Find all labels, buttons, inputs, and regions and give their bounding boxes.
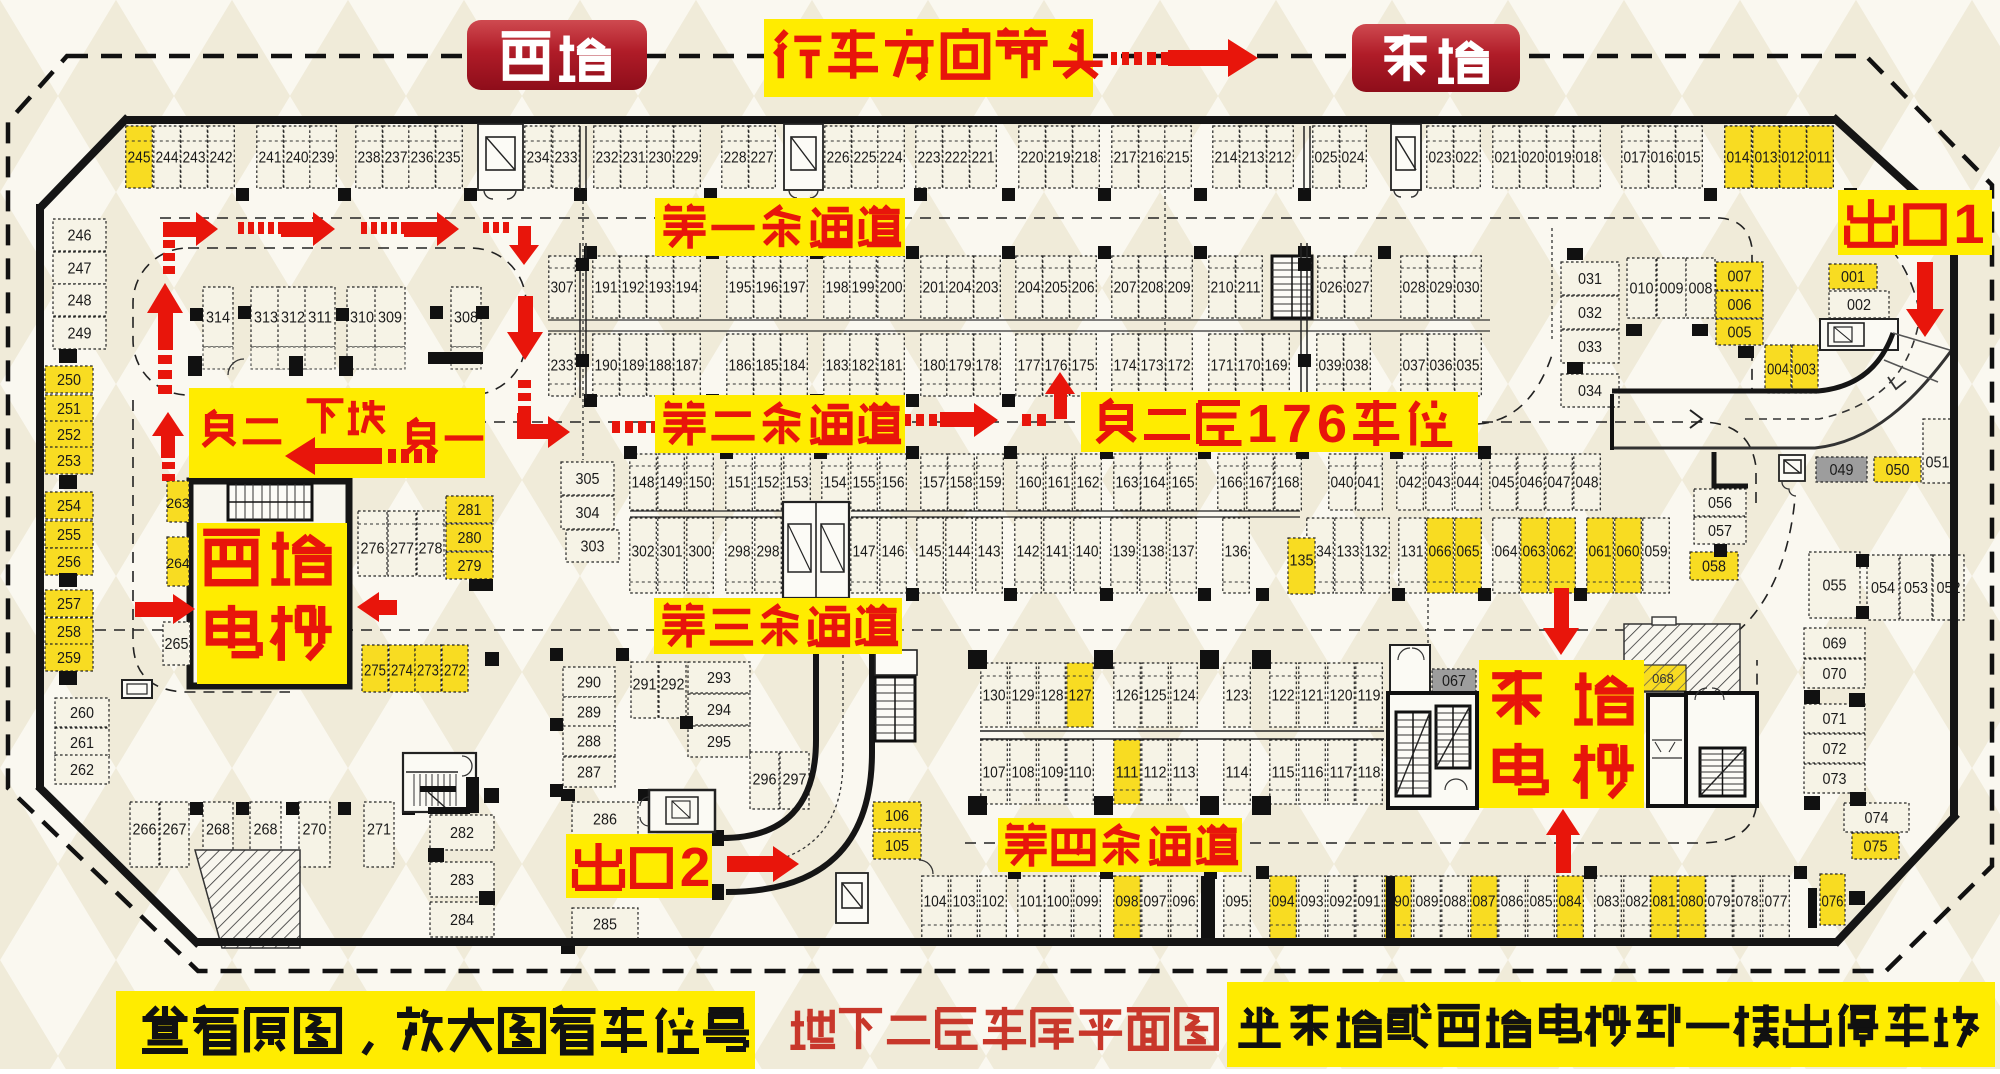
svg-text:218: 218 [1075, 150, 1098, 167]
svg-text:289: 289 [577, 705, 601, 722]
svg-text:200: 200 [880, 280, 903, 297]
svg-text:252: 252 [57, 427, 81, 444]
svg-text:280: 280 [458, 530, 482, 547]
svg-text:213: 213 [1242, 150, 1265, 167]
svg-text:103: 103 [953, 894, 976, 911]
svg-text:199: 199 [852, 280, 875, 297]
svg-text:029: 029 [1430, 280, 1453, 297]
svg-text:026: 026 [1320, 280, 1343, 297]
svg-text:151: 151 [728, 475, 751, 492]
svg-text:097: 097 [1144, 894, 1167, 911]
svg-text:243: 243 [183, 150, 206, 167]
svg-text:271: 271 [367, 822, 391, 839]
svg-text:230: 230 [649, 150, 672, 167]
svg-text:011: 011 [1809, 150, 1832, 167]
svg-text:186: 186 [729, 358, 752, 375]
svg-text:112: 112 [1144, 765, 1167, 782]
svg-text:291: 291 [633, 677, 657, 694]
svg-text:143: 143 [978, 544, 1001, 561]
svg-text:131: 131 [1401, 544, 1424, 561]
svg-text:236: 236 [411, 150, 434, 167]
svg-text:208: 208 [1141, 280, 1164, 297]
svg-text:286: 286 [593, 812, 617, 829]
svg-text:259: 259 [57, 650, 81, 667]
svg-text:087: 087 [1473, 894, 1496, 911]
svg-text:115: 115 [1272, 765, 1295, 782]
svg-text:235: 235 [438, 150, 461, 167]
svg-text:2: 2 [680, 836, 711, 898]
svg-text:303: 303 [581, 539, 605, 556]
svg-text:268: 268 [254, 822, 278, 839]
svg-text:211: 211 [1238, 280, 1261, 297]
svg-text:189: 189 [622, 358, 645, 375]
svg-text:125: 125 [1144, 688, 1167, 705]
svg-text:265: 265 [165, 636, 189, 653]
svg-text:158: 158 [950, 475, 973, 492]
svg-text:164: 164 [1143, 475, 1166, 492]
svg-text:181: 181 [880, 358, 903, 375]
svg-text:309: 309 [378, 310, 402, 327]
svg-text:070: 070 [1823, 666, 1847, 683]
svg-text:275: 275 [364, 663, 386, 680]
svg-text:288: 288 [577, 734, 601, 751]
svg-text:203: 203 [976, 280, 999, 297]
svg-text:290: 290 [577, 675, 601, 692]
svg-text:119: 119 [1358, 688, 1381, 705]
svg-text:156: 156 [882, 475, 905, 492]
svg-text:193: 193 [649, 280, 672, 297]
svg-text:137: 137 [1172, 544, 1195, 561]
svg-text:145: 145 [919, 544, 942, 561]
svg-text:007: 007 [1728, 269, 1752, 286]
svg-text:229: 229 [676, 150, 699, 167]
svg-text:050: 050 [1886, 462, 1910, 479]
svg-text:165: 165 [1172, 475, 1195, 492]
svg-text:045: 045 [1492, 475, 1515, 492]
svg-text:233: 233 [555, 150, 578, 167]
svg-text:088: 088 [1444, 894, 1467, 911]
svg-text:159: 159 [979, 475, 1002, 492]
svg-text:245: 245 [128, 150, 151, 167]
svg-text:162: 162 [1077, 475, 1100, 492]
svg-text:292: 292 [661, 677, 685, 694]
svg-text:155: 155 [853, 475, 876, 492]
svg-text:226: 226 [827, 150, 850, 167]
svg-text:284: 284 [450, 912, 474, 929]
svg-text:015: 015 [1678, 150, 1701, 167]
svg-text:034: 034 [1578, 383, 1602, 400]
svg-text:098: 098 [1116, 894, 1139, 911]
svg-text:268: 268 [206, 822, 230, 839]
svg-text:6: 6 [1317, 394, 1347, 454]
svg-text:142: 142 [1017, 544, 1040, 561]
svg-text:126: 126 [1116, 688, 1139, 705]
svg-text:132: 132 [1365, 544, 1388, 561]
svg-text:008: 008 [1689, 281, 1713, 298]
svg-text:041: 041 [1358, 475, 1381, 492]
svg-text:278: 278 [419, 541, 443, 558]
svg-text:118: 118 [1358, 765, 1381, 782]
svg-text:216: 216 [1141, 150, 1164, 167]
svg-text:190: 190 [595, 358, 618, 375]
svg-text:188: 188 [649, 358, 672, 375]
svg-text:025: 025 [1315, 150, 1338, 167]
svg-text:298: 298 [728, 544, 751, 561]
svg-text:005: 005 [1728, 325, 1752, 342]
svg-text:095: 095 [1226, 894, 1249, 911]
svg-text:066: 066 [1429, 544, 1452, 561]
svg-text:204: 204 [1018, 280, 1041, 297]
svg-text:160: 160 [1019, 475, 1042, 492]
svg-text:150: 150 [689, 475, 712, 492]
svg-text:195: 195 [729, 280, 752, 297]
svg-text:083: 083 [1597, 894, 1620, 911]
svg-text:310: 310 [350, 310, 374, 327]
svg-text:096: 096 [1173, 894, 1196, 911]
svg-text:139: 139 [1113, 544, 1136, 561]
svg-text:039: 039 [1319, 358, 1342, 375]
svg-text:091: 091 [1358, 894, 1381, 911]
svg-text:022: 022 [1456, 150, 1479, 167]
svg-text:093: 093 [1301, 894, 1324, 911]
svg-text:051: 051 [1926, 455, 1950, 472]
svg-text:089: 089 [1416, 894, 1439, 911]
svg-text:138: 138 [1142, 544, 1165, 561]
svg-text:298: 298 [757, 544, 780, 561]
svg-text:038: 038 [1346, 358, 1369, 375]
svg-text:233: 233 [551, 358, 574, 375]
svg-text:127: 127 [1069, 688, 1092, 705]
svg-text:033: 033 [1578, 339, 1602, 356]
svg-text:217: 217 [1114, 150, 1137, 167]
svg-text:109: 109 [1041, 765, 1064, 782]
svg-text:030: 030 [1457, 280, 1480, 297]
svg-text:191: 191 [595, 280, 618, 297]
svg-text:255: 255 [57, 527, 81, 544]
svg-text:086: 086 [1501, 894, 1524, 911]
svg-text:256: 256 [57, 554, 81, 571]
svg-text:264: 264 [166, 555, 190, 571]
svg-text:129: 129 [1012, 688, 1035, 705]
svg-text:231: 231 [623, 150, 646, 167]
svg-text:122: 122 [1272, 688, 1295, 705]
svg-text:121: 121 [1301, 688, 1324, 705]
svg-text:014: 014 [1727, 150, 1750, 167]
svg-text:242: 242 [210, 150, 233, 167]
svg-text:228: 228 [724, 150, 747, 167]
svg-text:128: 128 [1041, 688, 1064, 705]
svg-text:272: 272 [444, 663, 466, 680]
svg-text:003: 003 [1794, 362, 1816, 379]
svg-text:251: 251 [57, 401, 81, 418]
svg-text:175: 175 [1072, 358, 1095, 375]
svg-text:311: 311 [308, 310, 332, 327]
svg-text:296: 296 [753, 772, 777, 789]
svg-text:028: 028 [1403, 280, 1426, 297]
svg-text:101: 101 [1020, 894, 1043, 911]
svg-text:100: 100 [1047, 894, 1070, 911]
svg-text:072: 072 [1823, 741, 1847, 758]
svg-text:205: 205 [1045, 280, 1068, 297]
svg-text:081: 081 [1653, 894, 1676, 911]
svg-text:247: 247 [68, 261, 92, 278]
svg-text:120: 120 [1330, 688, 1353, 705]
svg-text:111: 111 [1116, 765, 1139, 782]
svg-text:154: 154 [824, 475, 847, 492]
svg-text:004: 004 [1767, 362, 1789, 379]
svg-text:116: 116 [1301, 765, 1324, 782]
svg-text:110: 110 [1069, 765, 1092, 782]
svg-text:059: 059 [1645, 544, 1668, 561]
svg-text:167: 167 [1249, 475, 1272, 492]
svg-text:287: 287 [577, 765, 601, 782]
svg-text:171: 171 [1211, 358, 1234, 375]
svg-text:105: 105 [885, 838, 909, 855]
svg-text:196: 196 [756, 280, 779, 297]
svg-text:241: 241 [259, 150, 282, 167]
svg-text:075: 075 [1864, 839, 1888, 856]
svg-text:254: 254 [57, 498, 81, 515]
svg-text:312: 312 [281, 310, 305, 327]
svg-text:178: 178 [976, 358, 999, 375]
svg-text:064: 064 [1495, 544, 1518, 561]
svg-text:002: 002 [1847, 297, 1871, 314]
svg-text:204: 204 [949, 280, 972, 297]
svg-text:212: 212 [1269, 150, 1292, 167]
svg-text:076: 076 [1822, 894, 1844, 911]
svg-text:266: 266 [133, 822, 157, 839]
svg-text:262: 262 [70, 762, 94, 779]
svg-text:304: 304 [576, 505, 600, 522]
svg-text:7: 7 [1282, 394, 1312, 454]
svg-text:221: 221 [972, 150, 995, 167]
svg-text:157: 157 [923, 475, 946, 492]
svg-text:056: 056 [1708, 495, 1732, 512]
svg-text:314: 314 [206, 310, 230, 327]
svg-text:077: 077 [1765, 894, 1788, 911]
svg-text:294: 294 [707, 702, 731, 719]
svg-text:307: 307 [551, 280, 574, 297]
svg-text:054: 054 [1871, 580, 1895, 597]
svg-text:295: 295 [707, 734, 731, 751]
svg-text:192: 192 [622, 280, 645, 297]
svg-text:107: 107 [983, 765, 1006, 782]
svg-text:144: 144 [948, 544, 971, 561]
svg-text:222: 222 [945, 150, 968, 167]
svg-text:153: 153 [786, 475, 809, 492]
svg-text:223: 223 [918, 150, 941, 167]
svg-text:283: 283 [450, 872, 474, 889]
svg-text:207: 207 [1114, 280, 1137, 297]
svg-text:019: 019 [1549, 150, 1572, 167]
svg-text:240: 240 [286, 150, 309, 167]
svg-text:185: 185 [756, 358, 779, 375]
svg-text:220: 220 [1021, 150, 1044, 167]
svg-text:267: 267 [163, 822, 187, 839]
svg-text:180: 180 [923, 358, 946, 375]
svg-text:018: 018 [1576, 150, 1599, 167]
svg-text:061: 061 [1589, 544, 1612, 561]
svg-text:027: 027 [1347, 280, 1370, 297]
svg-text:261: 261 [70, 735, 94, 752]
svg-text:198: 198 [826, 280, 849, 297]
svg-text:020: 020 [1522, 150, 1545, 167]
svg-text:017: 017 [1624, 150, 1647, 167]
svg-text:270: 270 [303, 822, 327, 839]
svg-text:060: 060 [1617, 544, 1640, 561]
svg-text:042: 042 [1399, 475, 1422, 492]
svg-text:099: 099 [1076, 894, 1099, 911]
svg-text:013: 013 [1755, 150, 1778, 167]
svg-text:201: 201 [923, 280, 946, 297]
svg-text:161: 161 [1048, 475, 1071, 492]
svg-text:308: 308 [454, 310, 478, 327]
svg-text:176: 176 [1045, 358, 1068, 375]
svg-text:001: 001 [1841, 269, 1865, 286]
svg-text:043: 043 [1428, 475, 1451, 492]
svg-text:113: 113 [1173, 765, 1196, 782]
svg-text:301: 301 [660, 544, 683, 561]
svg-text:152: 152 [757, 475, 780, 492]
svg-text:073: 073 [1823, 771, 1847, 788]
svg-text:055: 055 [1823, 578, 1847, 595]
svg-text:194: 194 [676, 280, 699, 297]
svg-text:040: 040 [1331, 475, 1354, 492]
svg-text:274: 274 [391, 663, 413, 680]
svg-text:024: 024 [1342, 150, 1365, 167]
svg-text:009: 009 [1660, 281, 1684, 298]
svg-text:209: 209 [1168, 280, 1191, 297]
svg-text:163: 163 [1116, 475, 1139, 492]
svg-text:297: 297 [783, 772, 807, 789]
svg-text:058: 058 [1702, 559, 1726, 576]
svg-text:249: 249 [68, 326, 92, 343]
svg-text:104: 104 [924, 894, 947, 911]
svg-text:250: 250 [57, 372, 81, 389]
svg-text:263: 263 [166, 495, 190, 511]
svg-text:187: 187 [676, 358, 699, 375]
svg-text:071: 071 [1823, 711, 1847, 728]
svg-text:036: 036 [1430, 358, 1453, 375]
svg-text:276: 276 [361, 541, 385, 558]
svg-text:108: 108 [1012, 765, 1035, 782]
svg-text:148: 148 [632, 475, 655, 492]
svg-text:010: 010 [1630, 281, 1654, 298]
svg-text:031: 031 [1578, 271, 1602, 288]
svg-text:141: 141 [1046, 544, 1069, 561]
svg-text:182: 182 [852, 358, 875, 375]
svg-text:130: 130 [983, 688, 1006, 705]
svg-text:149: 149 [660, 475, 683, 492]
svg-text:123: 123 [1226, 688, 1249, 705]
svg-text:074: 074 [1865, 810, 1889, 827]
svg-text:172: 172 [1168, 358, 1191, 375]
svg-text:1: 1 [1247, 394, 1277, 454]
svg-text:281: 281 [458, 502, 482, 519]
svg-text:305: 305 [576, 471, 600, 488]
svg-text:135: 135 [1290, 553, 1314, 570]
svg-text:068: 068 [1652, 671, 1674, 686]
svg-text:279: 279 [458, 558, 482, 575]
svg-text:069: 069 [1823, 636, 1847, 653]
svg-text:094: 094 [1272, 894, 1295, 911]
svg-text:183: 183 [826, 358, 849, 375]
svg-text:106: 106 [885, 808, 909, 825]
svg-text:049: 049 [1830, 462, 1854, 479]
svg-text:1: 1 [1953, 192, 1984, 255]
svg-text:032: 032 [1578, 305, 1602, 322]
svg-text:300: 300 [689, 544, 712, 561]
svg-text:046: 046 [1520, 475, 1543, 492]
svg-text:048: 048 [1576, 475, 1599, 492]
svg-text:225: 225 [854, 150, 877, 167]
svg-text:037: 037 [1403, 358, 1426, 375]
svg-text:082: 082 [1626, 894, 1649, 911]
svg-text:273: 273 [417, 663, 439, 680]
svg-text:282: 282 [450, 825, 474, 842]
svg-text:044: 044 [1457, 475, 1480, 492]
svg-text:067: 067 [1442, 673, 1466, 690]
svg-text:136: 136 [1225, 544, 1248, 561]
svg-text:146: 146 [882, 544, 905, 561]
svg-text:079: 079 [1708, 894, 1731, 911]
svg-text:124: 124 [1173, 688, 1196, 705]
svg-text:102: 102 [982, 894, 1005, 911]
svg-text:179: 179 [949, 358, 972, 375]
svg-text:293: 293 [707, 670, 731, 687]
svg-text:012: 012 [1782, 150, 1805, 167]
svg-text:063: 063 [1523, 544, 1546, 561]
svg-text:053: 053 [1904, 580, 1928, 597]
svg-text:214: 214 [1215, 150, 1238, 167]
svg-text:170: 170 [1238, 358, 1261, 375]
svg-text:084: 084 [1559, 894, 1582, 911]
svg-text:277: 277 [390, 541, 414, 558]
svg-text:140: 140 [1076, 544, 1099, 561]
svg-text:092: 092 [1330, 894, 1353, 911]
svg-text:227: 227 [751, 150, 774, 167]
svg-text:246: 246 [68, 228, 92, 245]
svg-text:302: 302 [632, 544, 655, 561]
svg-text:085: 085 [1530, 894, 1553, 911]
svg-text:114: 114 [1226, 765, 1249, 782]
svg-text:184: 184 [783, 358, 806, 375]
svg-text:238: 238 [358, 150, 381, 167]
svg-text:166: 166 [1220, 475, 1243, 492]
svg-text:168: 168 [1277, 475, 1300, 492]
svg-text:285: 285 [593, 917, 617, 934]
svg-text:197: 197 [783, 280, 806, 297]
svg-text:248: 248 [68, 293, 92, 310]
svg-text:224: 224 [880, 150, 903, 167]
svg-text:234: 234 [527, 150, 550, 167]
svg-text:035: 035 [1457, 358, 1480, 375]
svg-text:253: 253 [57, 453, 81, 470]
svg-text:174: 174 [1114, 358, 1137, 375]
svg-text:237: 237 [385, 150, 408, 167]
svg-text:080: 080 [1681, 894, 1704, 911]
svg-text:219: 219 [1048, 150, 1071, 167]
svg-text:062: 062 [1551, 544, 1574, 561]
svg-text:117: 117 [1330, 765, 1353, 782]
svg-text:215: 215 [1167, 150, 1190, 167]
svg-text:244: 244 [156, 150, 179, 167]
svg-text:133: 133 [1337, 544, 1360, 561]
svg-text:258: 258 [57, 624, 81, 641]
svg-text:313: 313 [254, 310, 278, 327]
svg-text:016: 016 [1651, 150, 1674, 167]
svg-text:210: 210 [1211, 280, 1234, 297]
